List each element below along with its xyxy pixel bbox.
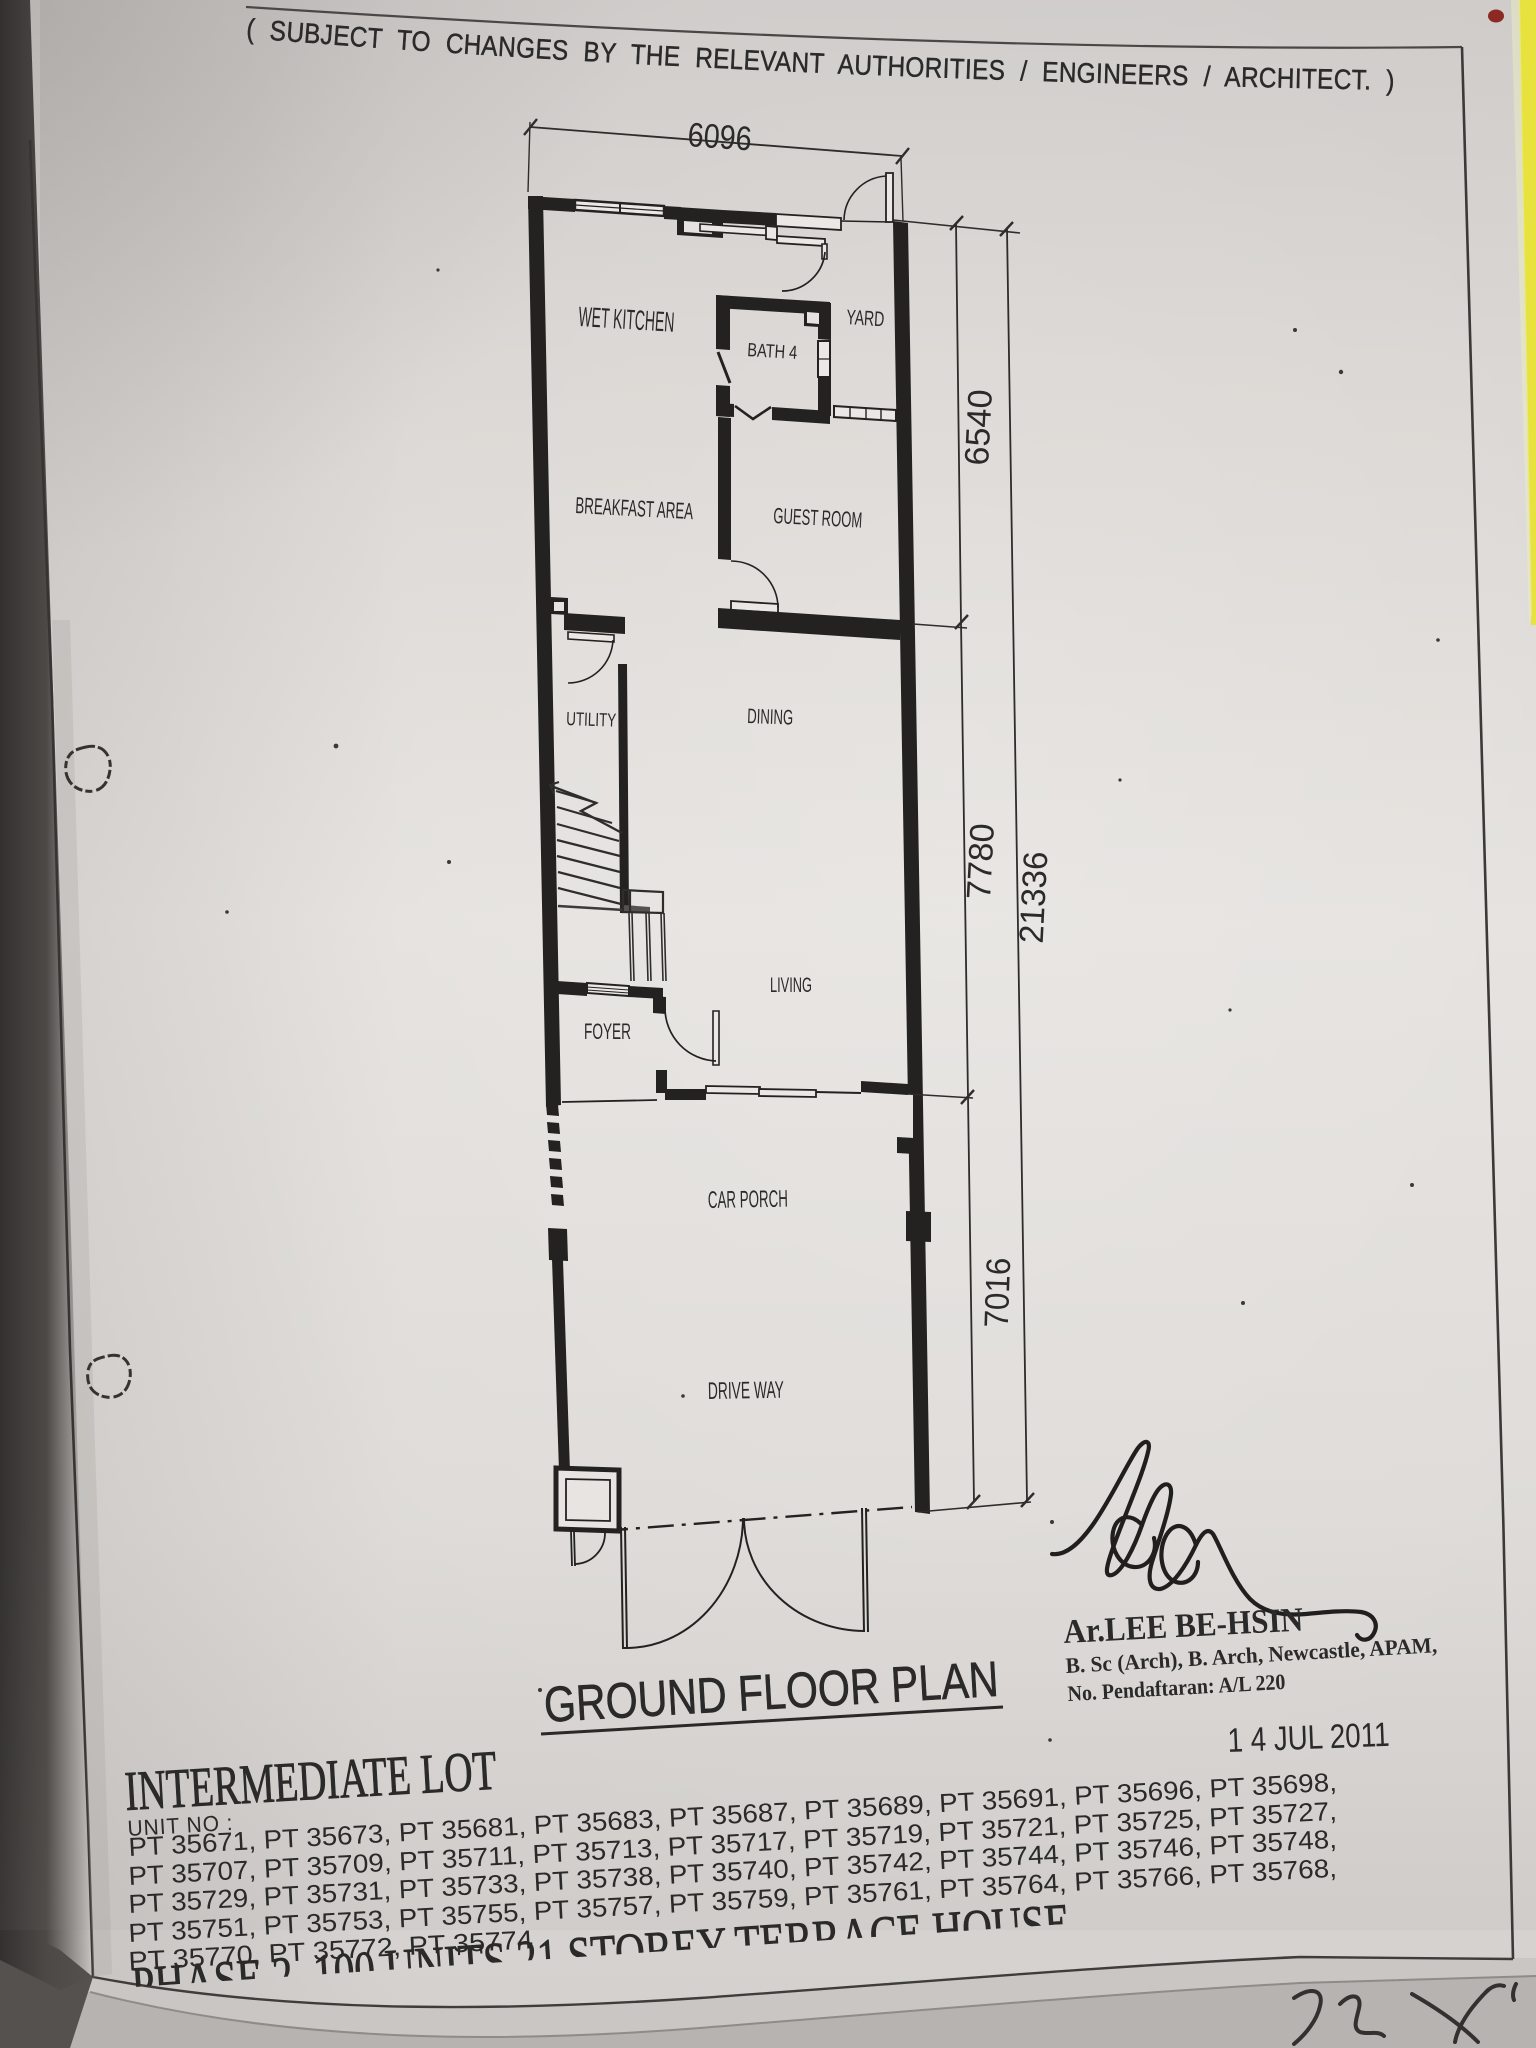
svg-text:LIVING: LIVING <box>770 974 812 997</box>
svg-text:GUEST ROOM: GUEST ROOM <box>773 503 863 533</box>
svg-text:1 4 JUL 2011: 1 4 JUL 2011 <box>1227 1716 1390 1760</box>
svg-text:21336: 21336 <box>1013 850 1056 944</box>
svg-text:7016: 7016 <box>978 1257 1018 1328</box>
svg-text:DINING: DINING <box>747 705 794 730</box>
svg-text:6540: 6540 <box>958 388 1000 466</box>
svg-text:DRIVE WAY: DRIVE WAY <box>708 1377 784 1405</box>
svg-text:YARD: YARD <box>846 306 885 331</box>
svg-text:7780: 7780 <box>960 822 1002 900</box>
svg-text:CAR PORCH: CAR PORCH <box>708 1186 788 1214</box>
svg-text:WET KITCHEN: WET KITCHEN <box>578 301 676 338</box>
svg-text:FOYER: FOYER <box>584 1019 631 1044</box>
svg-text:6096: 6096 <box>686 116 752 158</box>
svg-text:UTILITY: UTILITY <box>566 709 617 732</box>
svg-text:BATH 4: BATH 4 <box>747 340 799 364</box>
